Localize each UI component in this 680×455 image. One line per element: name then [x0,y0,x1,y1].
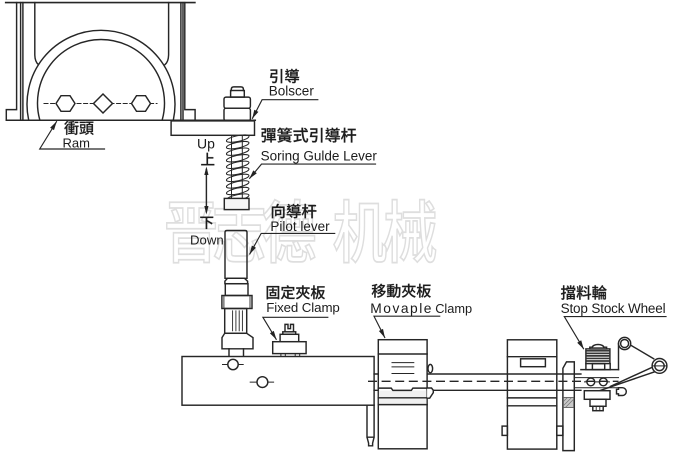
svg-text:Clamp: Clamp [435,301,472,316]
svg-text:Soring Gulde Lever: Soring Gulde Lever [261,149,378,164]
svg-text:Up: Up [197,136,215,152]
svg-text:Movaple: Movaple [370,301,433,316]
svg-text:Bolscer: Bolscer [269,83,315,98]
svg-text:Stop Stock Wheel: Stop Stock Wheel [561,301,666,316]
svg-text:Down: Down [190,232,224,247]
svg-text:Ram: Ram [63,136,90,151]
svg-text:Pilot lever: Pilot lever [270,219,330,234]
svg-text:Fixed Clamp: Fixed Clamp [266,300,340,315]
